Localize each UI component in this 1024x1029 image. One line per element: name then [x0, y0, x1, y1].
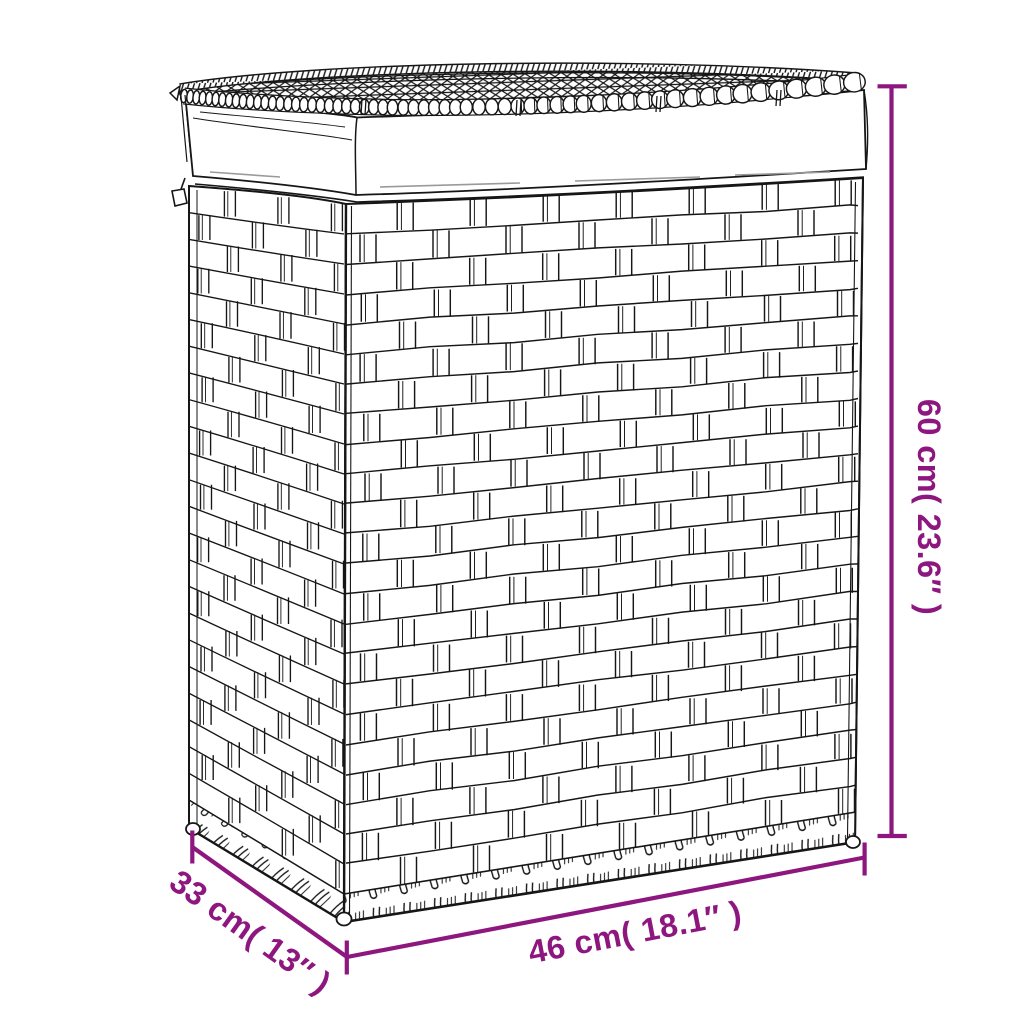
svg-text:60 cm( 23.6″ ): 60 cm( 23.6″ ) [911, 399, 947, 615]
svg-text:46 cm( 18.1″ ): 46 cm( 18.1″ ) [525, 894, 744, 970]
